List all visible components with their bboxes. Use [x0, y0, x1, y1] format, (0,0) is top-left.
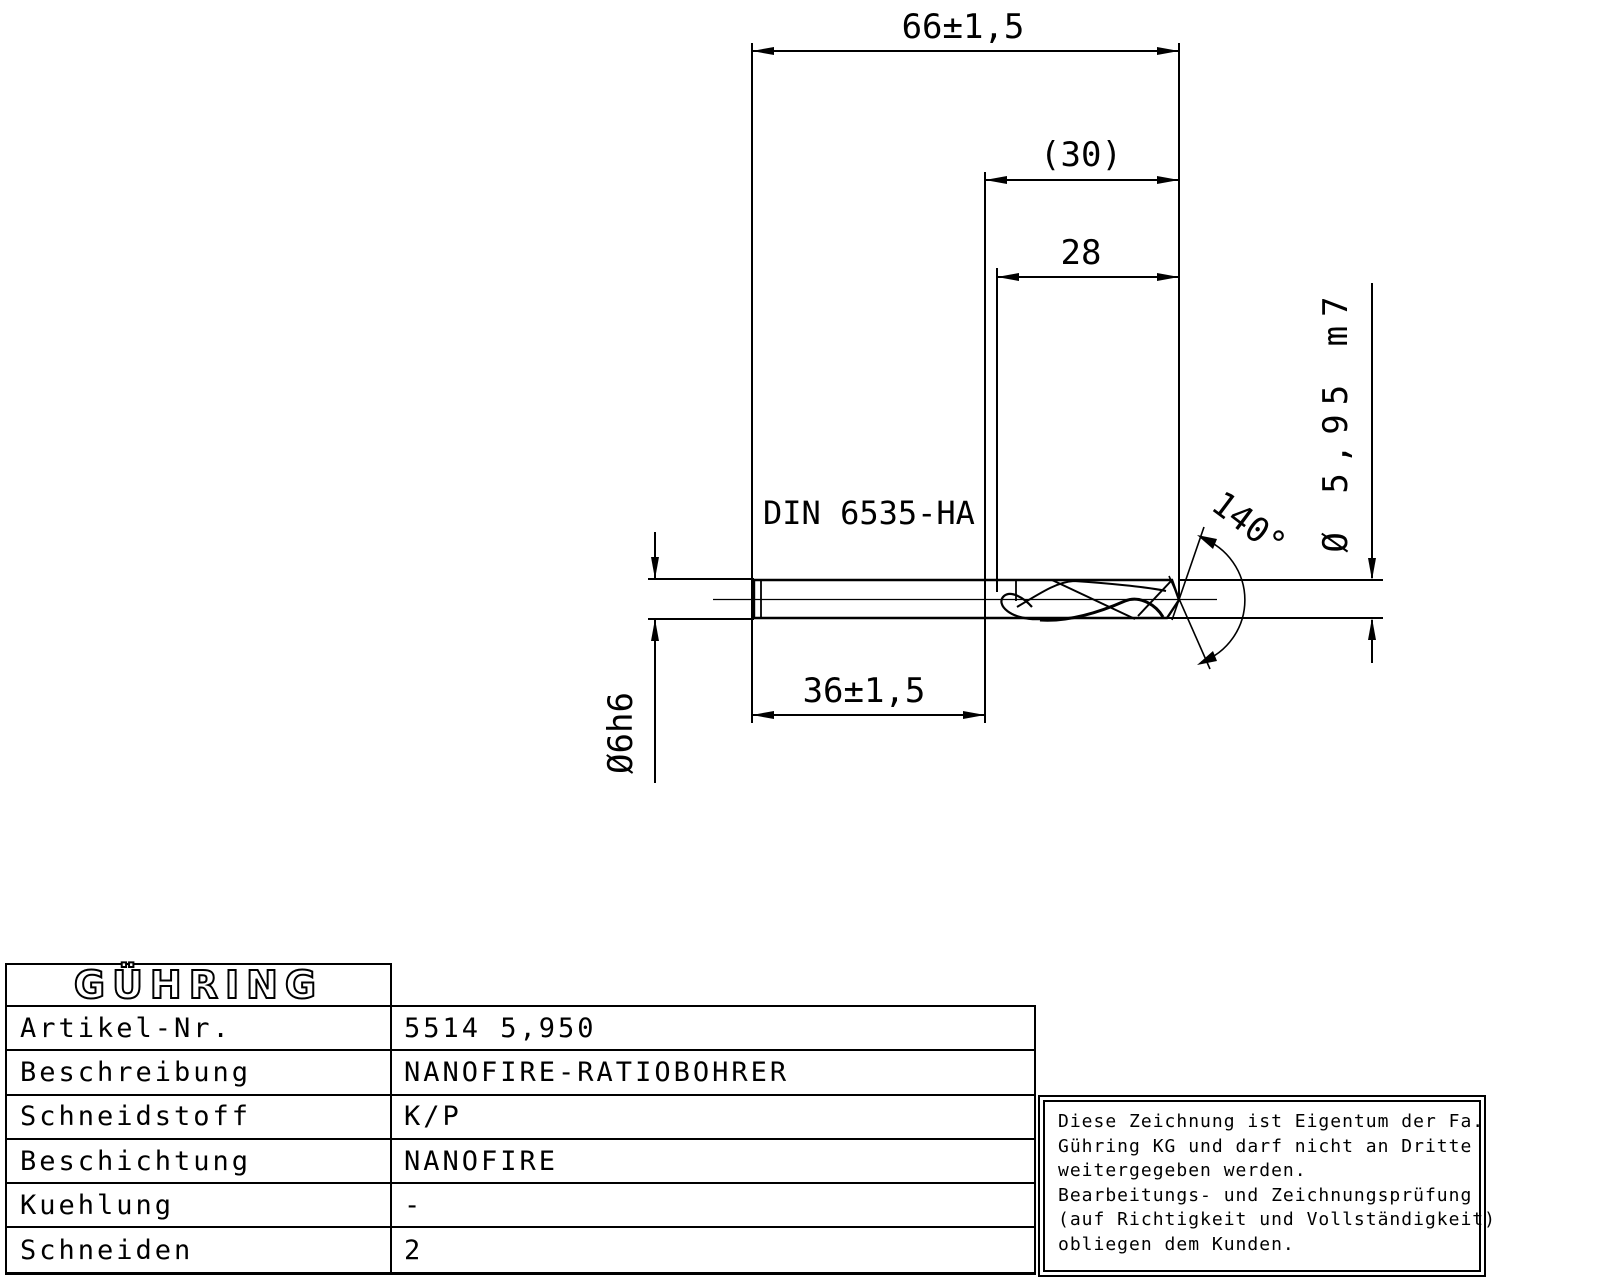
guehring-logo: GÜHRING [74, 966, 323, 1004]
arrow-left-icon [752, 47, 774, 55]
arrow-down-left-icon [1197, 651, 1217, 665]
dimension-shank-length: 36±1,5 [752, 671, 985, 719]
dimension-cutting-diameter: Ø 5,95 m7 [1153, 283, 1383, 663]
arrow-down-icon [651, 557, 659, 579]
disclaimer-box: Diese Zeichnung ist Eigentum der Fa. Güh… [1038, 1095, 1486, 1277]
table-row: Beschreibung NANOFIRE-RATIOBOHRER [7, 1051, 1034, 1095]
arrow-down-icon [1368, 558, 1376, 580]
row-value: NANOFIRE-RATIOBOHRER [392, 1051, 1034, 1093]
flute-runout-curve [1001, 594, 1042, 619]
arrow-up-icon [651, 619, 659, 641]
technical-drawing: 66±1,5 (30) 28 36±1,5 [0, 0, 1600, 960]
disclaimer-inner-border: Diese Zeichnung ist Eigentum der Fa. Güh… [1043, 1100, 1481, 1272]
row-label: Schneiden [7, 1228, 392, 1272]
dimension-shank-diameter: Ø6h6 [601, 532, 754, 783]
row-label: Kuehlung [7, 1184, 392, 1226]
arrow-left-icon [985, 176, 1007, 184]
arrow-left-icon [752, 711, 774, 719]
logo-cell: GÜHRING [5, 963, 392, 1005]
dim-text-cutting-diameter: Ø 5,95 m7 [1316, 287, 1356, 552]
disclaimer-line: weitergegeben werden. [1058, 1159, 1479, 1184]
cutting-edge-line [1138, 580, 1172, 616]
row-value: K/P [392, 1096, 1034, 1138]
row-label: Artikel-Nr. [7, 1007, 392, 1049]
disclaimer-line: Bearbeitungs- und Zeichnungsprüfung [1058, 1184, 1479, 1209]
arrow-right-icon [963, 711, 985, 719]
table-row: Kuehlung - [7, 1184, 1034, 1228]
dim-text-shank-length: 36±1,5 [803, 671, 926, 711]
dimension-flute-length: 28 [997, 233, 1179, 281]
dimension-point-angle: 140° [1169, 484, 1293, 669]
arrow-up-left-icon [1197, 535, 1217, 549]
disclaimer-line: (auf Richtigkeit und Vollständigkeit) [1058, 1208, 1479, 1233]
table-row: Beschichtung NANOFIRE [7, 1140, 1034, 1184]
drawing-sheet: 66±1,5 (30) 28 36±1,5 [0, 0, 1600, 1280]
dim-text-point-angle: 140° [1204, 484, 1293, 565]
arrow-right-icon [1157, 176, 1179, 184]
dimension-overall-length: 66±1,5 [752, 7, 1179, 55]
arrow-up-icon [1368, 618, 1376, 640]
arrow-right-icon [1157, 47, 1179, 55]
dim-text-shank-diameter: Ø6h6 [601, 692, 641, 774]
disclaimer-line: Gühring KG und darf nicht an Dritte [1058, 1135, 1479, 1160]
dim-text-flute-ref: (30) [1040, 135, 1122, 175]
row-label: Schneidstoff [7, 1096, 392, 1138]
dimension-flute-ref: (30) [985, 135, 1179, 184]
disclaimer-line: Diese Zeichnung ist Eigentum der Fa. [1058, 1110, 1479, 1135]
table-row: Schneidstoff K/P [7, 1096, 1034, 1140]
dim-text-flute-length: 28 [1061, 233, 1102, 273]
row-value: - [392, 1184, 1034, 1226]
row-value: NANOFIRE [392, 1140, 1034, 1182]
row-value: 5514 5,950 [392, 1007, 1034, 1049]
angle-ray-upper [1172, 527, 1204, 620]
flute-spiral-1 [1017, 581, 1166, 607]
drill-side-view [713, 580, 1217, 620]
table-row: Artikel-Nr. 5514 5,950 [7, 1007, 1034, 1051]
standard-label: DIN 6535-HA [763, 494, 975, 532]
arrow-left-icon [997, 273, 1019, 281]
row-label: Beschreibung [7, 1051, 392, 1093]
row-label: Beschichtung [7, 1140, 392, 1182]
arrow-right-icon [1157, 273, 1179, 281]
row-value: 2 [392, 1228, 1034, 1272]
table-row: Schneiden 2 [7, 1228, 1034, 1272]
title-block-table: Artikel-Nr. 5514 5,950 Beschreibung NANO… [5, 1005, 1036, 1275]
disclaimer-line: obliegen dem Kunden. [1058, 1233, 1479, 1258]
dim-text-overall-length: 66±1,5 [902, 7, 1025, 47]
